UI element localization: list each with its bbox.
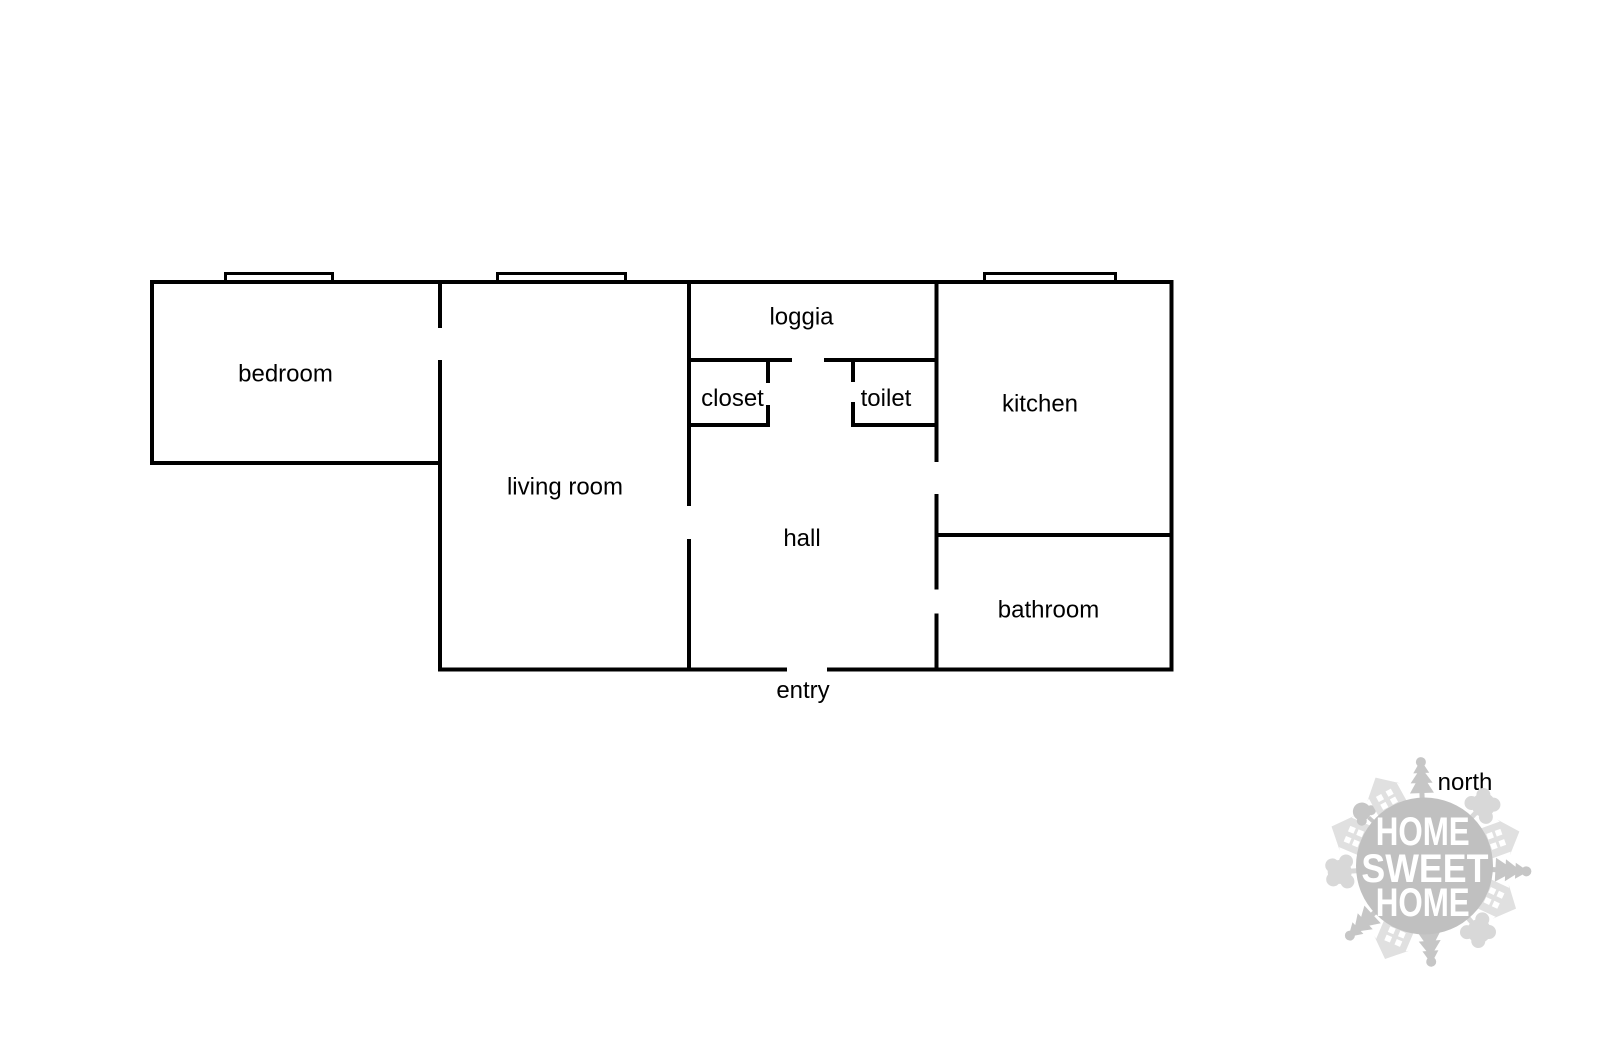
svg-text:bedroom: bedroom	[238, 361, 333, 388]
svg-text:entry: entry	[776, 677, 829, 704]
svg-text:toilet: toilet	[861, 385, 912, 412]
svg-text:bathroom: bathroom	[998, 597, 1099, 624]
svg-text:kitchen: kitchen	[1002, 391, 1078, 418]
svg-text:loggia: loggia	[769, 304, 834, 331]
svg-text:hall: hall	[783, 525, 820, 552]
svg-text:closet: closet	[701, 385, 764, 412]
svg-text:living room: living room	[507, 474, 623, 501]
svg-text:HOME: HOME	[1376, 881, 1470, 925]
